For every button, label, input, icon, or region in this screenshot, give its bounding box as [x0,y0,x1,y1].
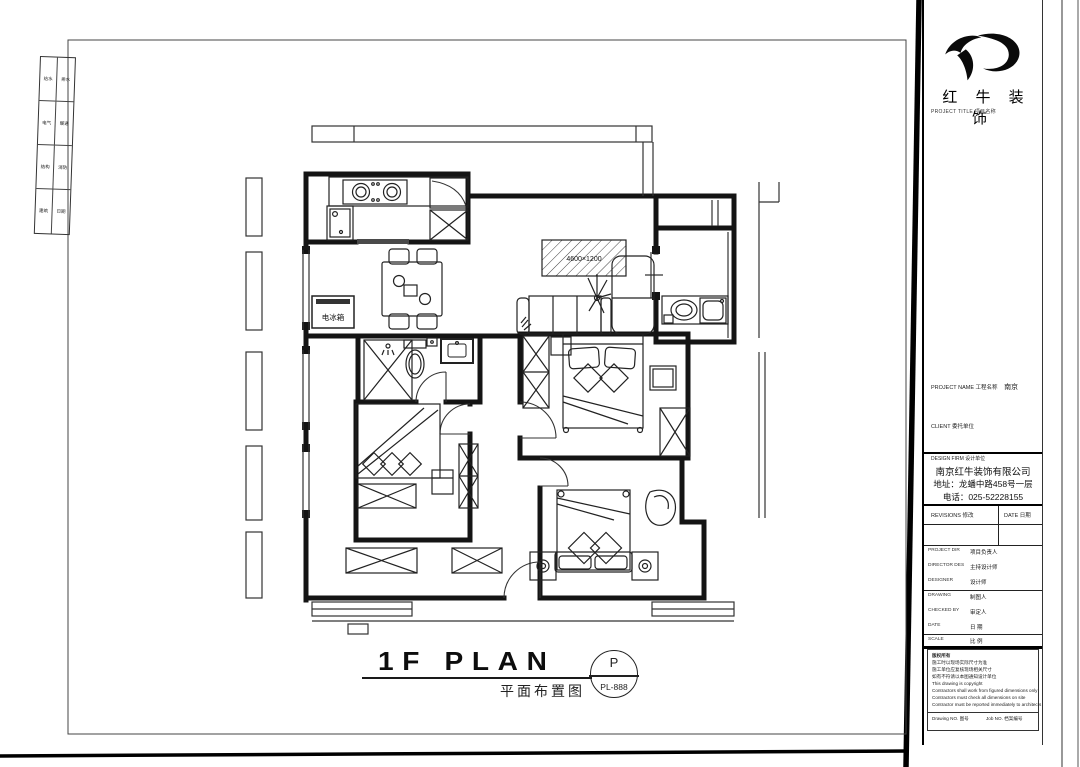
signature-cell: 暖通 [55,102,73,146]
plan-subtitle: 平面布置图 [500,681,585,701]
fridge-label: 电冰箱 [322,312,345,322]
signature-cell: 结构 [36,145,54,189]
client-row: CLIENT 委托单位 [931,422,979,430]
signature-cell: 电气 [38,101,56,145]
firm-company: 南京红牛装饰有限公司 [924,464,1042,478]
signature-row: 电气 暖通 [38,101,74,146]
title-block: 红 牛 装 饰 PROJECT TITLE 项目名称 PROJECT NAME … [922,0,1043,745]
note-line: Contractors must check all dimensions on… [932,695,1025,700]
dining-table [382,262,442,316]
note-line: Contractor must be reported immediately … [932,702,1041,707]
client-label: CLIENT 委托单位 [931,424,974,430]
row-en: DRAWING [928,593,951,598]
row-en: DATE [928,623,940,628]
living-room [517,240,654,334]
row-en: PROJECT DIR [928,548,960,553]
signature-cell: 给水 [39,57,57,101]
signature-cell: 消防 [53,146,71,190]
row-en: SCALE [928,637,944,642]
kitchen [327,177,468,244]
note-line: Contractors shall work from figured dime… [932,688,1037,693]
drawing-sheet: { "plan": { "fridge_label": "电冰箱", "tv_w… [0,0,1080,767]
left-bed [356,404,440,478]
balcony-laundry [662,296,728,324]
project-row: PROJECT NAME 工程名称 南京 [931,382,1018,392]
signature-strip: 给水 排水 电气 暖通 结构 消防 建筑 日期 [34,56,76,235]
row-zh: 制图人 [970,593,987,601]
stamp-letter: P [591,655,637,670]
washing-machine [700,298,726,323]
firm-address: 地址：龙蟠中路458号一层 [924,478,1042,490]
plan-title: 1F PLAN [378,646,555,677]
row-zh: 主持设计师 [970,563,998,571]
title-underline [362,677,592,679]
note-line: 版权所有 [932,653,950,659]
row-zh: 项目负责人 [970,548,998,556]
entry [452,548,502,573]
stamp-divider [589,675,639,677]
brand-caption: PROJECT TITLE 项目名称 [931,108,996,115]
kitchen-sink [327,206,353,240]
sofa [517,298,529,334]
signature-row: 建筑 日期 [35,189,71,234]
windows [246,126,779,634]
note-line: 如有不符请以本图通知设计单位 [932,674,996,680]
revisions-label: REVISIONS 修改 [931,513,973,519]
washbasin [441,339,473,363]
revisions-date: DATE 日期 [1004,511,1031,519]
firm-label: DESIGN FIRM 设计单位 [931,455,985,462]
tv-dim-label: 4600×1200 [566,256,601,263]
signature-cell: 日期 [52,190,71,235]
brand-logo [940,30,1026,86]
row-zh: 日 期 [970,623,983,631]
signature-cell: 建筑 [35,189,54,234]
note-line: This drawing is copyright [932,681,983,686]
nightstand [530,552,556,580]
signature-row: 给水 排水 [39,57,75,102]
nightstand [632,552,658,580]
revisions-header: REVISIONS 修改 [931,511,973,519]
note-line: 施工时以现场实际尺寸为准 [932,660,987,666]
firm-phone: 电话：025-52228155 [924,491,1042,503]
bottom-bedroom [530,490,675,580]
drawing-number-stamp: P PL-888 [590,650,638,698]
row-zh: 设计师 [970,578,987,586]
row-en: CHECKED BY [928,608,959,613]
plant [588,274,611,313]
footer-job-no: Job NO. 档案编号 [986,716,1023,722]
row-zh: 比 例 [970,637,983,645]
project-value: 南京 [1004,384,1018,391]
bottom-bed [557,490,630,570]
footer-drawing-no: Drawing NO. 图号 [932,716,969,722]
row-en: DIRECTOR DES [928,563,964,568]
brand-name: 红 牛 装 饰 [924,86,1042,128]
note-line: 施工单位应复核现场相关尺寸 [932,667,992,673]
row-en: DESIGNER [928,578,953,583]
notes-box: 版权所有 施工时以现场实际尺寸为准 施工单位应复核现场相关尺寸 如有不符请以本图… [927,649,1039,731]
signature-cell: 排水 [56,58,74,102]
sheet-border [68,40,906,734]
stamp-number: PL-888 [591,682,637,692]
row-zh: 审定人 [970,608,987,616]
laundry-tub [671,300,697,320]
revisions-divider [998,506,999,545]
project-label: PROJECT NAME 工程名称 [931,385,998,391]
signature-row: 结构 消防 [36,145,72,190]
